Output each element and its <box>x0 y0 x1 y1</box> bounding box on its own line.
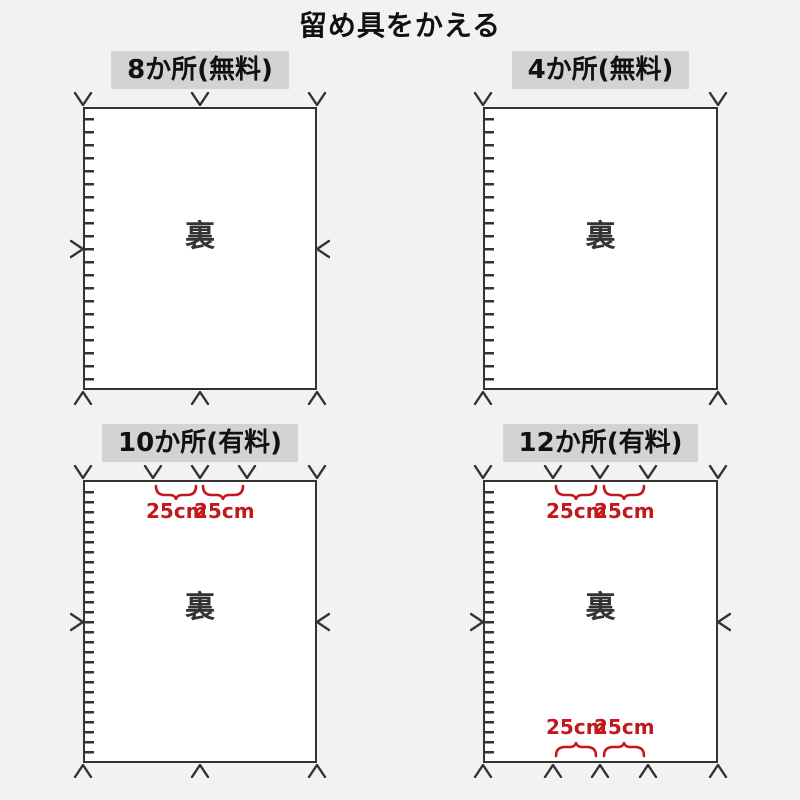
stitch-ticks-icon <box>485 491 494 758</box>
spacing-value-label: 25cm <box>594 716 654 738</box>
fastener-diagram: 留め具をかえる 8か所(無料) 裏 4か所(無料) 裏 10か所(有料) 裏 <box>0 0 800 800</box>
panel-12-spots: 12か所(有料) 裏 25cm 25cm 25cm 25cm <box>483 480 718 763</box>
panel-4-label: 4か所(無料) <box>512 51 690 89</box>
fastener-mark-down-icon <box>190 465 210 479</box>
fastener-mark-up-icon <box>190 391 210 405</box>
fastener-mark-up-icon <box>190 764 210 778</box>
fastener-mark-down-icon <box>543 465 563 479</box>
spacing-brace-icon <box>602 742 646 758</box>
fastener-mark-right-icon <box>70 612 84 632</box>
fastener-mark-up-icon <box>473 391 493 405</box>
fastener-mark-up-icon <box>543 764 563 778</box>
fastener-mark-up-icon <box>638 764 658 778</box>
back-side-label: 裏 <box>483 222 718 252</box>
fastener-mark-up-icon <box>473 764 493 778</box>
fastener-mark-up-icon <box>307 391 327 405</box>
panel-10-spots: 10か所(有料) 裏 25cm 25cm <box>83 480 317 763</box>
panel-4-spots: 4か所(無料) 裏 <box>483 107 718 390</box>
fastener-mark-down-icon <box>143 465 163 479</box>
page-title: 留め具をかえる <box>0 4 800 44</box>
panel-8-label: 8か所(無料) <box>111 51 289 89</box>
fastener-mark-left-icon <box>316 612 330 632</box>
spacing-brace-icon <box>554 742 598 758</box>
fastener-mark-up-icon <box>708 391 728 405</box>
spacing-value-label: 25cm <box>594 500 654 522</box>
fastener-mark-down-icon <box>473 92 493 106</box>
fastener-mark-down-icon <box>708 465 728 479</box>
fastener-mark-up-icon <box>590 764 610 778</box>
spacing-brace-icon <box>602 484 646 500</box>
panel-12-label: 12か所(有料) <box>503 424 699 462</box>
stitch-ticks-icon <box>85 491 94 758</box>
fastener-mark-left-icon <box>316 239 330 259</box>
fastener-mark-down-icon <box>190 92 210 106</box>
spacing-brace-icon <box>554 484 598 500</box>
panel-10-label: 10か所(有料) <box>102 424 298 462</box>
fastener-mark-down-icon <box>473 465 493 479</box>
back-side-label: 裏 <box>483 593 718 623</box>
fastener-mark-up-icon <box>307 764 327 778</box>
fastener-mark-down-icon <box>638 465 658 479</box>
spacing-brace-icon <box>154 484 198 500</box>
fastener-mark-down-icon <box>708 92 728 106</box>
spacing-value-label: 25cm <box>194 500 254 522</box>
fastener-mark-down-icon <box>237 465 257 479</box>
spacing-brace-icon <box>201 484 245 500</box>
fastener-mark-down-icon <box>590 465 610 479</box>
panel-8-spots: 8か所(無料) 裏 <box>83 107 317 390</box>
fastener-mark-down-icon <box>73 465 93 479</box>
back-side-label: 裏 <box>83 222 317 252</box>
fastener-mark-left-icon <box>717 612 731 632</box>
fastener-mark-up-icon <box>73 391 93 405</box>
fastener-mark-down-icon <box>307 465 327 479</box>
fastener-mark-right-icon <box>70 239 84 259</box>
back-side-label: 裏 <box>83 593 317 623</box>
fastener-mark-right-icon <box>470 612 484 632</box>
fastener-mark-up-icon <box>73 764 93 778</box>
fastener-mark-down-icon <box>73 92 93 106</box>
fastener-mark-down-icon <box>307 92 327 106</box>
fastener-mark-up-icon <box>708 764 728 778</box>
